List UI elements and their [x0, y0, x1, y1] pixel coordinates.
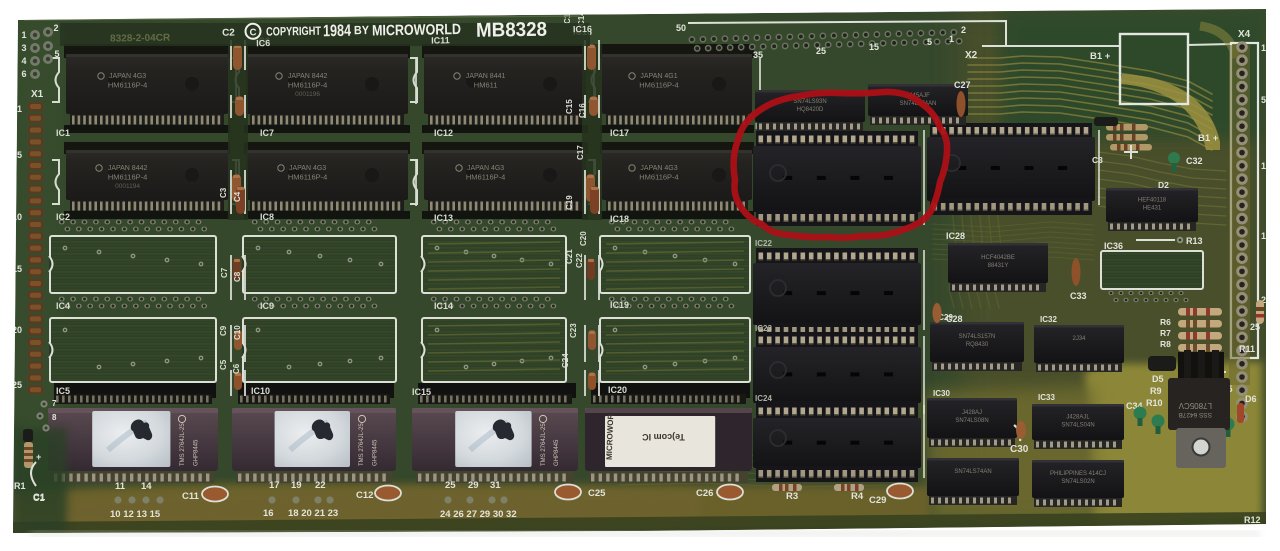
- svg-text:IC2: IC2: [56, 212, 70, 222]
- svg-text:IC12: IC12: [434, 128, 453, 138]
- svg-text:C17: C17: [576, 145, 585, 160]
- svg-text:C27: C27: [954, 80, 971, 90]
- svg-text:TMS 2764JL-25: TMS 2764JL-25: [541, 423, 547, 466]
- svg-text:MB8328: MB8328: [476, 19, 547, 42]
- svg-text:1: 1: [17, 104, 22, 114]
- svg-text:C12: C12: [356, 490, 373, 501]
- svg-text:35: 35: [753, 50, 763, 60]
- svg-text:R13: R13: [1186, 236, 1203, 246]
- svg-text:JAPAN 8442: JAPAN 8442: [108, 165, 148, 172]
- svg-text:IC9: IC9: [260, 301, 274, 311]
- svg-text:IC36: IC36: [1104, 241, 1123, 251]
- svg-text:IC7: IC7: [260, 128, 274, 138]
- svg-text:IC28: IC28: [946, 231, 965, 241]
- svg-text:+: +: [36, 452, 41, 462]
- svg-text:L7805CV: L7805CV: [1178, 401, 1212, 410]
- svg-text:R4: R4: [851, 491, 864, 502]
- svg-text:10 12 13 15: 10 12 13 15: [110, 509, 161, 520]
- svg-text:COPYRIGHT: COPYRIGHT: [266, 24, 322, 39]
- svg-text:IC1: IC1: [56, 128, 70, 138]
- svg-text:IC5: IC5: [56, 386, 70, 396]
- svg-text:18 20 21 23: 18 20 21 23: [288, 508, 338, 519]
- svg-text:IC23: IC23: [755, 324, 772, 333]
- svg-text:HCF4042BE: HCF4042BE: [981, 255, 1015, 261]
- svg-text:15: 15: [869, 42, 879, 52]
- svg-text:1: 1: [21, 30, 26, 40]
- svg-text:IC19: IC19: [610, 300, 629, 310]
- svg-text:HM6116P-4: HM6116P-4: [466, 173, 505, 182]
- svg-text:14: 14: [141, 481, 152, 492]
- svg-text:IC8: IC8: [260, 212, 274, 222]
- svg-text:25: 25: [816, 46, 826, 56]
- svg-text:C29: C29: [869, 495, 886, 506]
- svg-text:HM6116P-4: HM6116P-4: [108, 173, 147, 182]
- svg-text:IC17: IC17: [610, 128, 629, 138]
- svg-text:HE431: HE431: [1143, 206, 1162, 212]
- svg-text:SN74LS04N: SN74LS04N: [1061, 422, 1094, 428]
- svg-text:8328-2-04CR: 8328-2-04CR: [110, 33, 171, 45]
- svg-text:SN74LS157N: SN74LS157N: [959, 334, 996, 340]
- svg-text:B1 +: B1 +: [1198, 133, 1219, 144]
- svg-text:IC32: IC32: [1040, 315, 1057, 324]
- svg-text:IC4: IC4: [56, 301, 70, 311]
- svg-text:4: 4: [21, 56, 26, 66]
- svg-text:C5: C5: [219, 359, 228, 370]
- svg-text:X2: X2: [965, 50, 978, 61]
- svg-text:C24: C24: [561, 353, 570, 368]
- svg-text:TMS 2764JL-25: TMS 2764JL-25: [359, 423, 365, 466]
- svg-text:SN74LS93N: SN74LS93N: [793, 99, 826, 105]
- svg-text:C23: C23: [569, 323, 578, 338]
- svg-text:HM6116P-4: HM6116P-4: [639, 81, 678, 90]
- svg-text:JAPAN 4G1: JAPAN 4G1: [640, 73, 677, 80]
- svg-text:C21: C21: [565, 249, 574, 264]
- svg-text:1984: 1984: [323, 22, 352, 40]
- svg-text:R8: R8: [1160, 339, 1171, 349]
- svg-text:7: 7: [52, 399, 57, 408]
- svg-text:2: 2: [53, 23, 58, 33]
- svg-text:11: 11: [115, 481, 126, 492]
- svg-text:C1: C1: [33, 492, 46, 503]
- svg-text:JAPAN 8441: JAPAN 8441: [466, 73, 506, 80]
- svg-text:2: 2: [961, 25, 966, 35]
- svg-text:GHP8445: GHP8445: [554, 439, 560, 466]
- svg-text:IC20: IC20: [608, 385, 627, 395]
- svg-text:JAPAN 8442: JAPAN 8442: [288, 73, 328, 80]
- svg-text:5: 5: [927, 37, 932, 47]
- svg-text:JAPAN 4G3: JAPAN 4G3: [640, 165, 677, 172]
- svg-text:IC33: IC33: [1038, 393, 1055, 402]
- svg-text:1: 1: [949, 34, 954, 44]
- svg-text:GHP8445: GHP8445: [194, 439, 200, 466]
- svg-text:R10: R10: [1146, 398, 1163, 408]
- svg-text:GHP8445: GHP8445: [372, 439, 378, 466]
- svg-text:RQ8430: RQ8430: [966, 342, 989, 348]
- svg-text:50: 50: [676, 23, 686, 33]
- svg-text:C8: C8: [233, 271, 242, 282]
- svg-text:HM6116P-4: HM6116P-4: [288, 173, 327, 182]
- svg-text:R6: R6: [1160, 317, 1171, 327]
- svg-text:PHILIPPINES 414CJ: PHILIPPINES 414CJ: [1050, 471, 1106, 477]
- svg-text:31: 31: [490, 480, 501, 491]
- svg-text:JAPAN 4G3: JAPAN 4G3: [289, 165, 326, 172]
- svg-text:MICROWOR: MICROWOR: [605, 413, 616, 460]
- svg-text:C: C: [250, 27, 257, 38]
- svg-text:SN74LS74AN: SN74LS74AN: [954, 469, 991, 475]
- svg-text:HM611: HM611: [474, 81, 498, 90]
- svg-text:0001194: 0001194: [115, 183, 140, 190]
- svg-text:IC18: IC18: [610, 214, 629, 224]
- svg-text:MICROWORLD: MICROWORLD: [372, 21, 461, 39]
- svg-text:C19: C19: [565, 195, 574, 210]
- svg-text:Te)com IC: Te)com IC: [642, 432, 685, 442]
- svg-text:IC6: IC6: [256, 38, 270, 48]
- svg-text:C32: C32: [1186, 156, 1203, 166]
- svg-text:C26: C26: [696, 488, 713, 499]
- svg-text:X1: X1: [31, 89, 44, 100]
- svg-text:C28: C28: [946, 314, 963, 324]
- svg-text:J428AJL: J428AJL: [1066, 414, 1090, 420]
- svg-text:C30: C30: [1010, 444, 1029, 455]
- svg-text:IC22: IC22: [755, 239, 772, 248]
- svg-text:IC30: IC30: [933, 389, 950, 398]
- svg-text:SN74LS02N: SN74LS02N: [1061, 479, 1094, 485]
- svg-text:C10: C10: [233, 325, 242, 340]
- svg-text:HM6116P-4: HM6116P-4: [639, 173, 678, 182]
- svg-text:BY: BY: [354, 23, 369, 37]
- svg-text:IC16: IC16: [573, 24, 592, 34]
- svg-text:C7: C7: [220, 267, 229, 278]
- svg-text:0001196: 0001196: [295, 91, 320, 98]
- svg-text:19: 19: [291, 480, 302, 491]
- svg-text:D2: D2: [1158, 180, 1169, 190]
- svg-text:16: 16: [263, 508, 274, 519]
- svg-text:25: 25: [445, 480, 456, 491]
- svg-text:JAPAN 4G3: JAPAN 4G3: [467, 165, 504, 172]
- svg-text:5: 5: [1261, 95, 1266, 105]
- svg-text:D6: D6: [1245, 394, 1257, 404]
- svg-text:X4: X4: [1238, 29, 1251, 40]
- svg-text:29: 29: [468, 480, 479, 491]
- svg-text:3: 3: [21, 43, 26, 53]
- svg-text:17: 17: [269, 480, 280, 491]
- svg-text:IC10: IC10: [251, 386, 270, 396]
- svg-text:HM6116P-4: HM6116P-4: [288, 81, 327, 90]
- svg-text:IC14: IC14: [434, 301, 453, 311]
- svg-text:24 26 27 29 30 32: 24 26 27 29 30 32: [440, 509, 517, 520]
- svg-text:R1: R1: [14, 481, 26, 491]
- svg-text:88431Y: 88431Y: [988, 263, 1009, 269]
- svg-text:SSS 6427B: SSS 6427B: [1178, 411, 1212, 418]
- svg-text:C20: C20: [579, 231, 588, 246]
- svg-text:C2: C2: [222, 28, 235, 39]
- svg-text:8: 8: [52, 413, 57, 422]
- svg-text:R11: R11: [1239, 344, 1255, 354]
- svg-text:SN74LS08N: SN74LS08N: [955, 418, 988, 424]
- svg-text:TMS 2764JL-25: TMS 2764JL-25: [180, 423, 186, 466]
- svg-text:C3: C3: [219, 187, 228, 198]
- svg-text:C33: C33: [1070, 291, 1087, 301]
- svg-text:IC15: IC15: [412, 387, 431, 397]
- svg-text:IC24: IC24: [755, 394, 772, 403]
- svg-text:J428AJ: J428AJ: [962, 410, 982, 416]
- svg-text:JAPAN 4G3: JAPAN 4G3: [109, 73, 146, 80]
- svg-text:2J34: 2J34: [1072, 336, 1086, 342]
- svg-text:C11: C11: [182, 491, 200, 502]
- svg-text:C9: C9: [219, 325, 228, 336]
- svg-text:1: 1: [1261, 43, 1266, 53]
- svg-text:C25: C25: [588, 488, 606, 499]
- svg-text:C6: C6: [232, 363, 241, 374]
- svg-text:5: 5: [17, 150, 22, 160]
- svg-text:C4: C4: [233, 191, 242, 202]
- svg-text:5: 5: [54, 49, 59, 59]
- svg-text:6: 6: [21, 69, 26, 79]
- svg-text:C16: C16: [578, 103, 587, 118]
- svg-text:B1 +: B1 +: [1090, 51, 1111, 62]
- svg-text:C22: C22: [575, 253, 584, 268]
- svg-text:R7: R7: [1160, 328, 1171, 338]
- svg-text:R3: R3: [786, 491, 798, 502]
- svg-text:HEF40118: HEF40118: [1138, 198, 1167, 204]
- svg-text:R9: R9: [1150, 386, 1162, 396]
- svg-text:R12: R12: [1244, 515, 1261, 525]
- svg-text:C3: C3: [1092, 155, 1103, 165]
- svg-text:C15: C15: [565, 99, 574, 114]
- svg-text:22: 22: [315, 480, 326, 491]
- svg-text:IC13: IC13: [434, 213, 453, 223]
- svg-text:HQ8420D: HQ8420D: [797, 107, 824, 113]
- svg-text:D5: D5: [1152, 374, 1164, 384]
- svg-text:HM6116P-4: HM6116P-4: [108, 81, 147, 90]
